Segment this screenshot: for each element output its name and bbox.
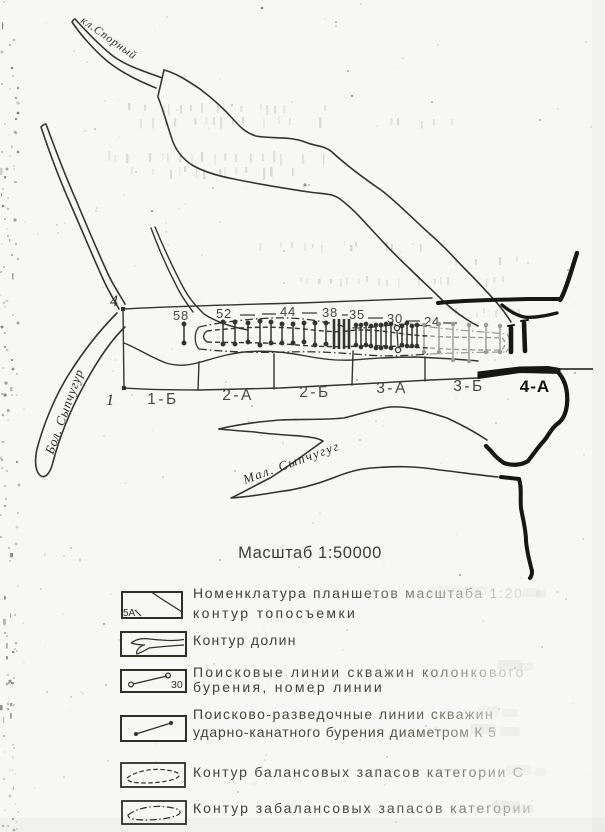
svg-text:2-Б: 2-Б bbox=[299, 384, 330, 401]
svg-text:1: 1 bbox=[106, 392, 114, 409]
svg-text:Масштаб 1:50000: Масштаб 1:50000 bbox=[238, 544, 382, 562]
svg-text:Контур балансовых запасов кате: Контур балансовых запасов категории С bbox=[193, 764, 525, 780]
svg-text:3-Б: 3-Б bbox=[453, 378, 484, 395]
svg-text:бурения, номер линии: бурения, номер линии bbox=[193, 679, 384, 695]
svg-text:1-Б: 1-Б bbox=[147, 391, 178, 408]
svg-text:контур топосъемки: контур топосъемки bbox=[193, 605, 357, 621]
svg-text:30: 30 bbox=[171, 679, 183, 691]
svg-text:Контур долин: Контур долин bbox=[193, 632, 297, 648]
svg-text:Поисковые линии скважин колонк: Поисковые линии скважин колонкового bbox=[193, 664, 526, 680]
svg-text:ударно-канатного бурения диаме: ударно-канатного бурения диаметром К 5 bbox=[193, 724, 497, 740]
svg-text:35: 35 bbox=[349, 307, 365, 322]
svg-text:58: 58 bbox=[173, 308, 189, 323]
svg-text:38: 38 bbox=[322, 305, 338, 320]
svg-text:4: 4 bbox=[110, 293, 118, 310]
svg-text:44: 44 bbox=[280, 304, 296, 319]
svg-text:Поисково-разведочные линии скв: Поисково-разведочные линии скважин bbox=[193, 706, 494, 722]
svg-text:4-А: 4-А bbox=[520, 377, 550, 396]
svg-text:52: 52 bbox=[216, 306, 232, 321]
svg-text:2-А: 2-А bbox=[222, 387, 254, 404]
svg-text:Контур забалансовых запасов ка: Контур забалансовых запасов категории bbox=[193, 800, 532, 816]
svg-text:5А: 5А bbox=[123, 608, 136, 619]
svg-text:3-А: 3-А bbox=[376, 380, 408, 397]
